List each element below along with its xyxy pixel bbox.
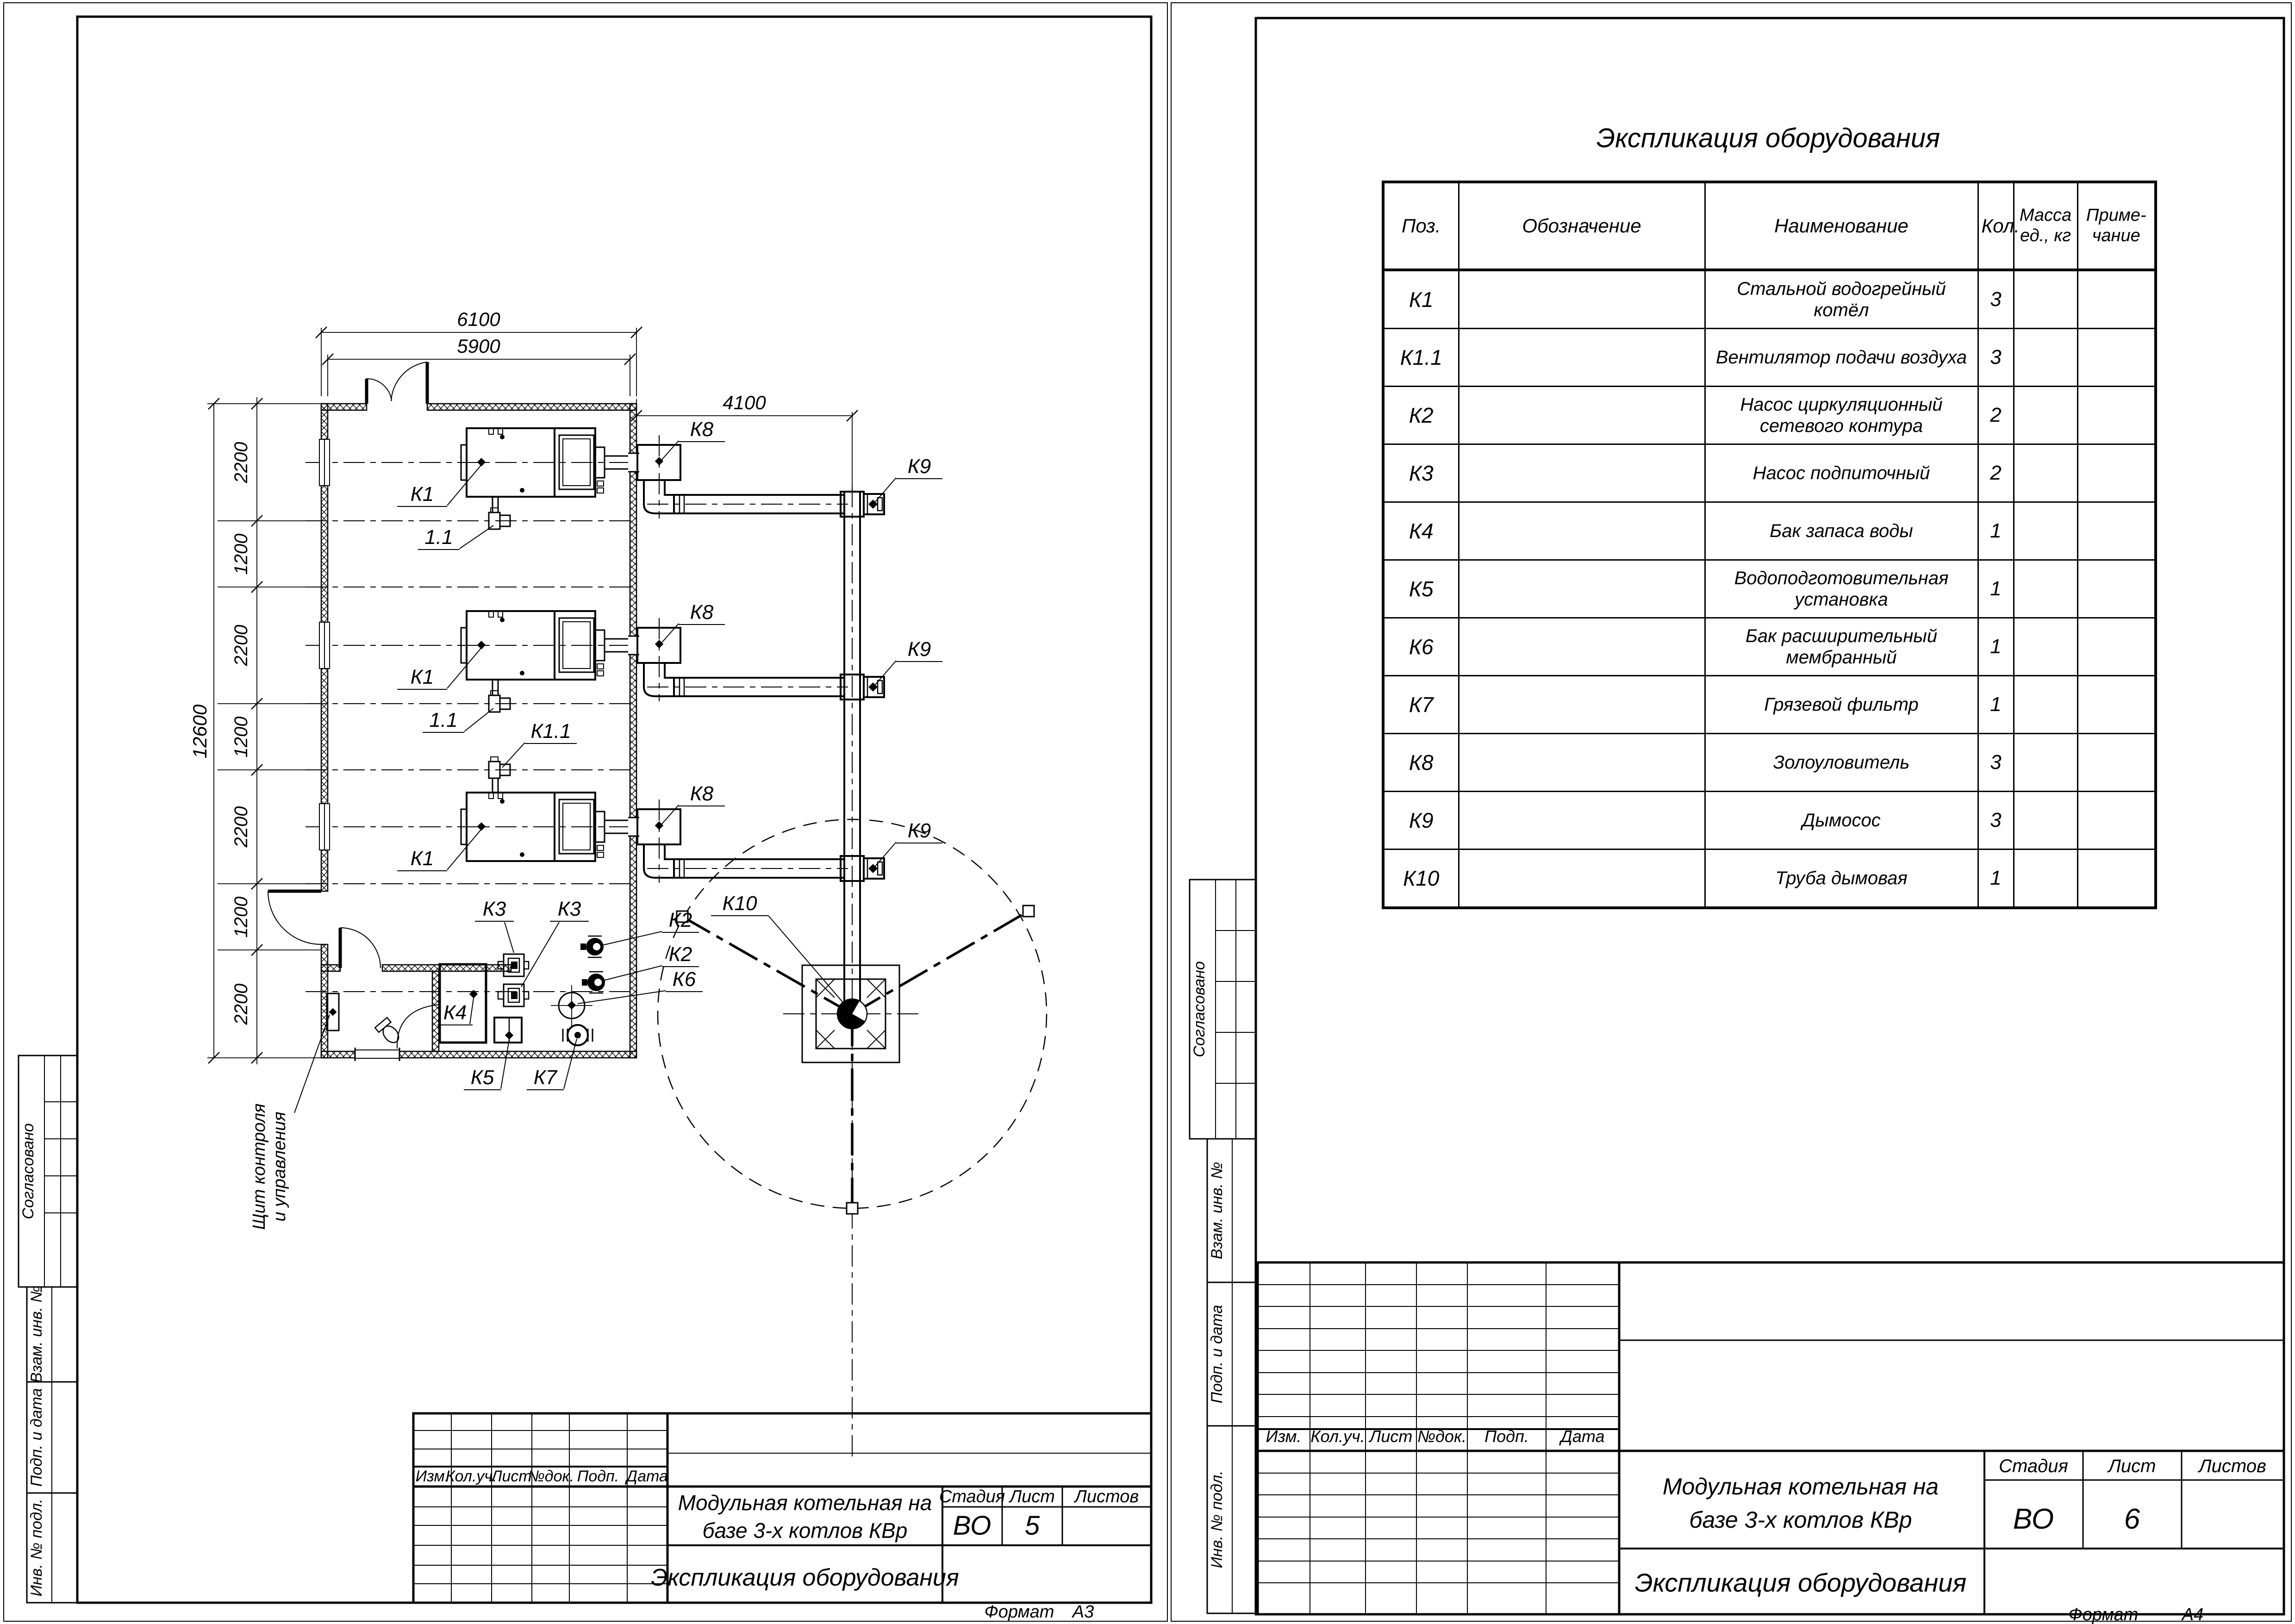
filter-k7 [563, 1025, 592, 1045]
dim-seg-2: 1200 [231, 534, 251, 575]
label-k1-row2: К1 [411, 666, 434, 688]
stamp-agreed-label: Согласовано [1191, 961, 1208, 1057]
cell-pos: К9 [1383, 792, 1459, 849]
rev-col-list: Лист [490, 1468, 532, 1485]
col-header-note-l2: чание [2081, 226, 2152, 246]
label-k4: К4 [443, 1001, 467, 1024]
rev-col-list: Лист [1369, 1427, 1413, 1446]
spec-row-k2: К2 Насос циркуляционный сетевого контура… [1383, 387, 2156, 444]
label-fan-row2: 1.1 [429, 709, 457, 731]
spec-row-k9: К9 Дымосос 3 [1383, 792, 2156, 849]
label-k9-row2: К9 [908, 638, 931, 661]
sheets-label: Листов [1073, 1487, 1139, 1506]
project-title-line1: Модульная котельная на [1663, 1474, 1939, 1499]
stamp-subst-inv-label: Взам. инв. № [28, 1286, 45, 1383]
label-k8-row3: К8 [690, 782, 714, 805]
spec-table-title: Экспликация оборудования [1597, 123, 1940, 153]
cell-designation [1459, 560, 1705, 618]
cell-mass [2014, 676, 2077, 734]
pump-k2-upper [580, 936, 604, 957]
spec-row-k10: К10 Труба дымовая 1 [1383, 849, 2156, 908]
cell-pos: К10 [1383, 849, 1459, 908]
cell-note [2077, 270, 2156, 329]
dim-flue: 4100 [723, 392, 766, 413]
stamp-inv-orig-label: Инв. № подл. [1208, 1471, 1226, 1568]
flue-row-2 [628, 628, 884, 700]
col-header-mass-l2: ед., кг [2017, 226, 2074, 246]
spec-row-k7: К7 Грязевой фильтр 1 [1383, 676, 2156, 734]
label-k2-upper: К2 [669, 909, 692, 931]
spec-row-k1-1: К1.1 Вентилятор подачи воздуха 3 [1383, 329, 2156, 387]
spec-row-k5: К5 Водоподготовительная установка 1 [1383, 560, 2156, 618]
right-side-stamp-labels: Согласовано Взам. инв. № Подп. и дата Ин… [1191, 961, 1226, 1568]
cell-note [2077, 618, 2156, 676]
dim-total-height: 12600 [189, 704, 211, 758]
col-header-mass: Масса ед., кг [2014, 182, 2077, 270]
col-header-mass-l1: Масса [2017, 206, 2074, 226]
cell-designation [1459, 792, 1705, 849]
dim-seg-1: 2200 [231, 442, 251, 484]
cell-note [2077, 560, 2156, 618]
boiler-3 [461, 757, 630, 861]
stamp-sign-date-label: Подп. и дата [1208, 1305, 1226, 1404]
label-k10: К10 [723, 892, 757, 915]
pump-k2-lower [582, 972, 605, 993]
cell-qty: 3 [1978, 792, 2014, 849]
cell-mass [2014, 329, 2077, 387]
pump-k3-lower [498, 984, 529, 1006]
label-control-panel-l2: и управления [270, 1112, 289, 1221]
stage-value: ВО [2013, 1503, 2054, 1535]
sheet-number: 6 [2124, 1503, 2140, 1535]
cell-qty: 2 [1978, 387, 2014, 444]
stamp-inv-orig-label: Инв. № подл. [28, 1499, 45, 1597]
cell-pos: К4 [1383, 502, 1459, 560]
cell-name: Грязевой фильтр [1705, 676, 1978, 734]
sheet-label: Лист [2107, 1456, 2156, 1476]
format-value: А3 [1072, 1602, 1094, 1622]
label-k1-row3: К1 [411, 847, 434, 870]
cell-designation [1459, 329, 1705, 387]
label-k8-row2: К8 [690, 601, 714, 624]
cell-name: Труба дымовая [1705, 849, 1978, 908]
label-k3-left: К3 [483, 898, 506, 920]
cell-designation [1459, 502, 1705, 560]
project-title-line2: базе 3-х котлов КВр [703, 1518, 908, 1543]
cell-qty: 1 [1978, 618, 2014, 676]
cell-pos: К1.1 [1383, 329, 1459, 387]
cell-qty: 3 [1978, 734, 2014, 792]
rev-col-doc: №док. [528, 1468, 574, 1485]
sheets-label: Листов [2197, 1456, 2266, 1476]
left-side-stamp-labels: Согласовано Взам. инв. № Подп. и дата Ин… [19, 1123, 45, 1596]
cell-qty: 1 [1978, 676, 2014, 734]
cell-mass [2014, 270, 2077, 329]
label-k3-right: К3 [558, 898, 581, 920]
label-k7: К7 [534, 1066, 558, 1089]
plan-labels: 6100 5900 4100 12600 2200 1200 2200 1200… [189, 308, 931, 1230]
sheet-number: 5 [1025, 1511, 1040, 1541]
cell-designation [1459, 270, 1705, 329]
rev-col-data: Дата [624, 1468, 668, 1485]
cell-pos: К1 [1383, 270, 1459, 329]
cell-name: Дымосос [1705, 792, 1978, 849]
dim-seg-6: 1200 [231, 897, 251, 938]
wc-fixtures [375, 1005, 439, 1049]
cell-mass [2014, 444, 2077, 502]
cell-name: Золоуловитель [1705, 734, 1978, 792]
cell-note [2077, 676, 2156, 734]
cell-pos: К7 [1383, 676, 1459, 734]
cell-note [2077, 849, 2156, 908]
drawing-page: Согласовано Взам. инв. № Подп. и дата Ин… [0, 0, 2295, 1624]
cell-name: Бак запаса воды [1705, 502, 1978, 560]
cell-mass [2014, 560, 2077, 618]
col-header-note-l1: Приме- [2081, 206, 2152, 226]
cell-designation [1459, 387, 1705, 444]
cell-mass [2014, 792, 2077, 849]
cell-mass [2014, 734, 2077, 792]
spec-row-k4: К4 Бак запаса воды 1 [1383, 502, 2156, 560]
doc-title: Экспликация оборудования [651, 1564, 959, 1591]
rev-col-data: Дата [1559, 1427, 1605, 1446]
cell-designation [1459, 849, 1705, 908]
col-header-qty: Кол. [1978, 182, 2014, 270]
cell-designation [1459, 734, 1705, 792]
cell-mass [2014, 502, 2077, 560]
cell-note [2077, 444, 2156, 502]
project-title-line2: базе 3-х котлов КВр [1689, 1507, 1912, 1533]
cell-name: Бак расширительный мембранный [1705, 618, 1978, 676]
spec-row-k3: К3 Насос подпиточный 2 [1383, 444, 2156, 502]
cell-mass [2014, 618, 2077, 676]
label-k6: К6 [673, 968, 696, 991]
label-fan-row3: К1.1 [530, 720, 571, 743]
col-header-note: Приме- чание [2077, 182, 2156, 270]
spec-row-k6: К6 Бак расширительный мембранный 1 [1383, 618, 2156, 676]
cell-qty: 3 [1978, 270, 2014, 329]
dim-width-inner: 5900 [457, 335, 500, 357]
flue-row-3 [628, 809, 884, 881]
label-fan-row1: 1.1 [424, 526, 453, 549]
dim-seg-7: 2200 [231, 984, 251, 1025]
doc-title: Экспликация оборудования [1635, 1568, 1967, 1597]
rev-col-koluch: Кол.уч. [1310, 1427, 1365, 1446]
format-value: А4 [2181, 1605, 2203, 1624]
stamp-sign-date-label: Подп. и дата [28, 1388, 45, 1487]
dim-seg-4: 1200 [231, 717, 251, 758]
cell-pos: К5 [1383, 560, 1459, 618]
control-panel [327, 993, 339, 1031]
cell-note [2077, 502, 2156, 560]
dim-width-outer: 6100 [457, 308, 500, 330]
cell-designation [1459, 676, 1705, 734]
label-k9-row1: К9 [908, 455, 931, 478]
cell-note [2077, 792, 2156, 849]
spec-row-k1: К1 Стальной водогрейный котёл 3 [1383, 270, 2156, 329]
cell-pos: К6 [1383, 618, 1459, 676]
col-header-name: Наименование [1705, 182, 1978, 270]
cell-note [2077, 734, 2156, 792]
cell-designation [1459, 618, 1705, 676]
rev-col-izm: Изм. [416, 1468, 449, 1485]
cell-name: Вентилятор подачи воздуха [1705, 329, 1978, 387]
rev-col-koluch: Кол.уч. [446, 1468, 497, 1485]
cell-name: Насос подпиточный [1705, 444, 1978, 502]
rev-col-podp: Подп. [1484, 1427, 1529, 1446]
chimney [802, 965, 899, 1062]
label-k5: К5 [471, 1066, 494, 1089]
col-header-pos: Поз. [1383, 182, 1459, 270]
dim-seg-5: 2200 [231, 806, 251, 848]
cell-name: Водоподготовительная установка [1705, 560, 1978, 618]
stage-label: Стадия [939, 1487, 1005, 1506]
cell-designation [1459, 444, 1705, 502]
stage-value: ВО [953, 1511, 992, 1541]
cell-qty: 1 [1978, 560, 2014, 618]
spec-header-row: Поз. Обозначение Наименование Кол. Масса… [1383, 182, 2156, 270]
col-header-designation: Обозначение [1459, 182, 1705, 270]
cell-qty: 1 [1978, 502, 2014, 560]
cell-qty: 3 [1978, 329, 2014, 387]
stage-label: Стадия [1999, 1456, 2068, 1476]
cell-pos: К8 [1383, 734, 1459, 792]
rev-col-podp: Подп. [577, 1468, 619, 1485]
cell-qty: 1 [1978, 849, 2014, 908]
label-k9-row3: К9 [908, 819, 931, 842]
floor-plan: 6100 5900 4100 12600 2200 1200 2200 1200… [189, 308, 1047, 1461]
cell-mass [2014, 849, 2077, 908]
boiler-1 [461, 428, 630, 529]
boiler-2 [461, 611, 630, 712]
water-treatment-k5 [494, 1018, 522, 1043]
building-walls [321, 404, 636, 1058]
stamp-subst-inv-label: Взам. инв. № [1208, 1162, 1226, 1259]
label-control-panel-l1: Щит контроля [249, 1104, 269, 1230]
cell-pos: К2 [1383, 387, 1459, 444]
cell-qty: 2 [1978, 444, 2014, 502]
spec-row-k8: К8 Золоуловитель 3 [1383, 734, 2156, 792]
sheet-label: Лист [1008, 1487, 1055, 1506]
cell-note [2077, 329, 2156, 387]
cell-name: Стальной водогрейный котёл [1705, 270, 1978, 329]
centerlines [306, 435, 921, 1461]
cell-name: Насос циркуляционный сетевого контура [1705, 387, 1978, 444]
label-k1-row1: К1 [411, 483, 434, 506]
dim-seg-3: 2200 [231, 625, 251, 667]
label-k8-row1: К8 [690, 418, 714, 441]
rev-col-izm: Изм. [1266, 1427, 1302, 1446]
flue-row-1 [628, 445, 884, 517]
cell-pos: К3 [1383, 444, 1459, 502]
equipment-spec-table: Поз. Обозначение Наименование Кол. Масса… [1382, 181, 2157, 909]
rev-col-doc: №док. [1417, 1427, 1466, 1446]
stamp-agreed-label: Согласовано [19, 1123, 37, 1219]
format-label: Формат [985, 1602, 1054, 1622]
cell-mass [2014, 387, 2077, 444]
label-k2-lower: К2 [669, 943, 692, 966]
doors [268, 362, 427, 1061]
cell-note [2077, 387, 2156, 444]
format-label: Формат [2069, 1605, 2139, 1624]
project-title-line1: Модульная котельная на [678, 1491, 932, 1515]
